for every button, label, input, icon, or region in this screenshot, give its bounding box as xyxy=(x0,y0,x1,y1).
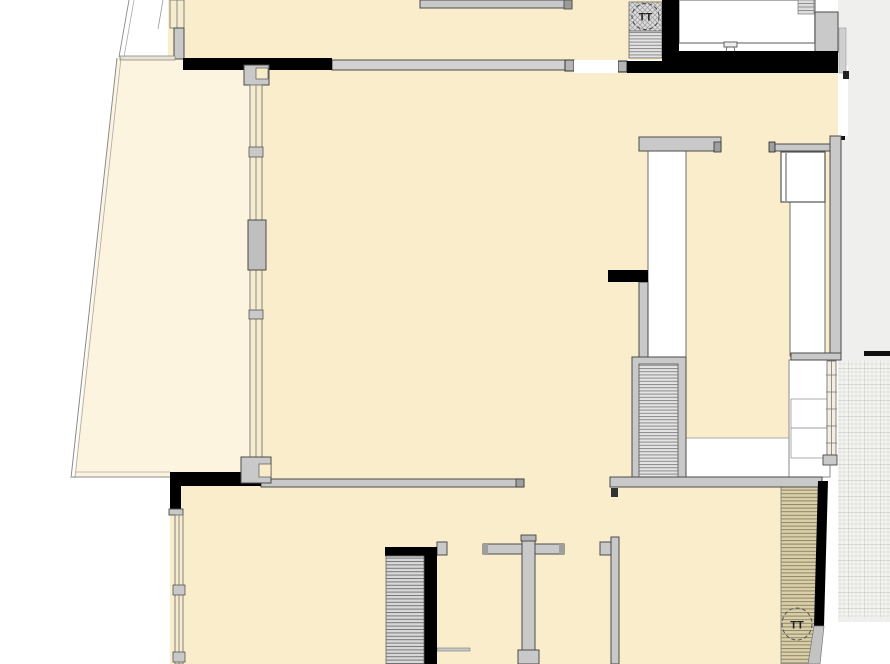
svg-text:TT: TT xyxy=(639,12,653,24)
svg-text:TT: TT xyxy=(790,620,804,632)
